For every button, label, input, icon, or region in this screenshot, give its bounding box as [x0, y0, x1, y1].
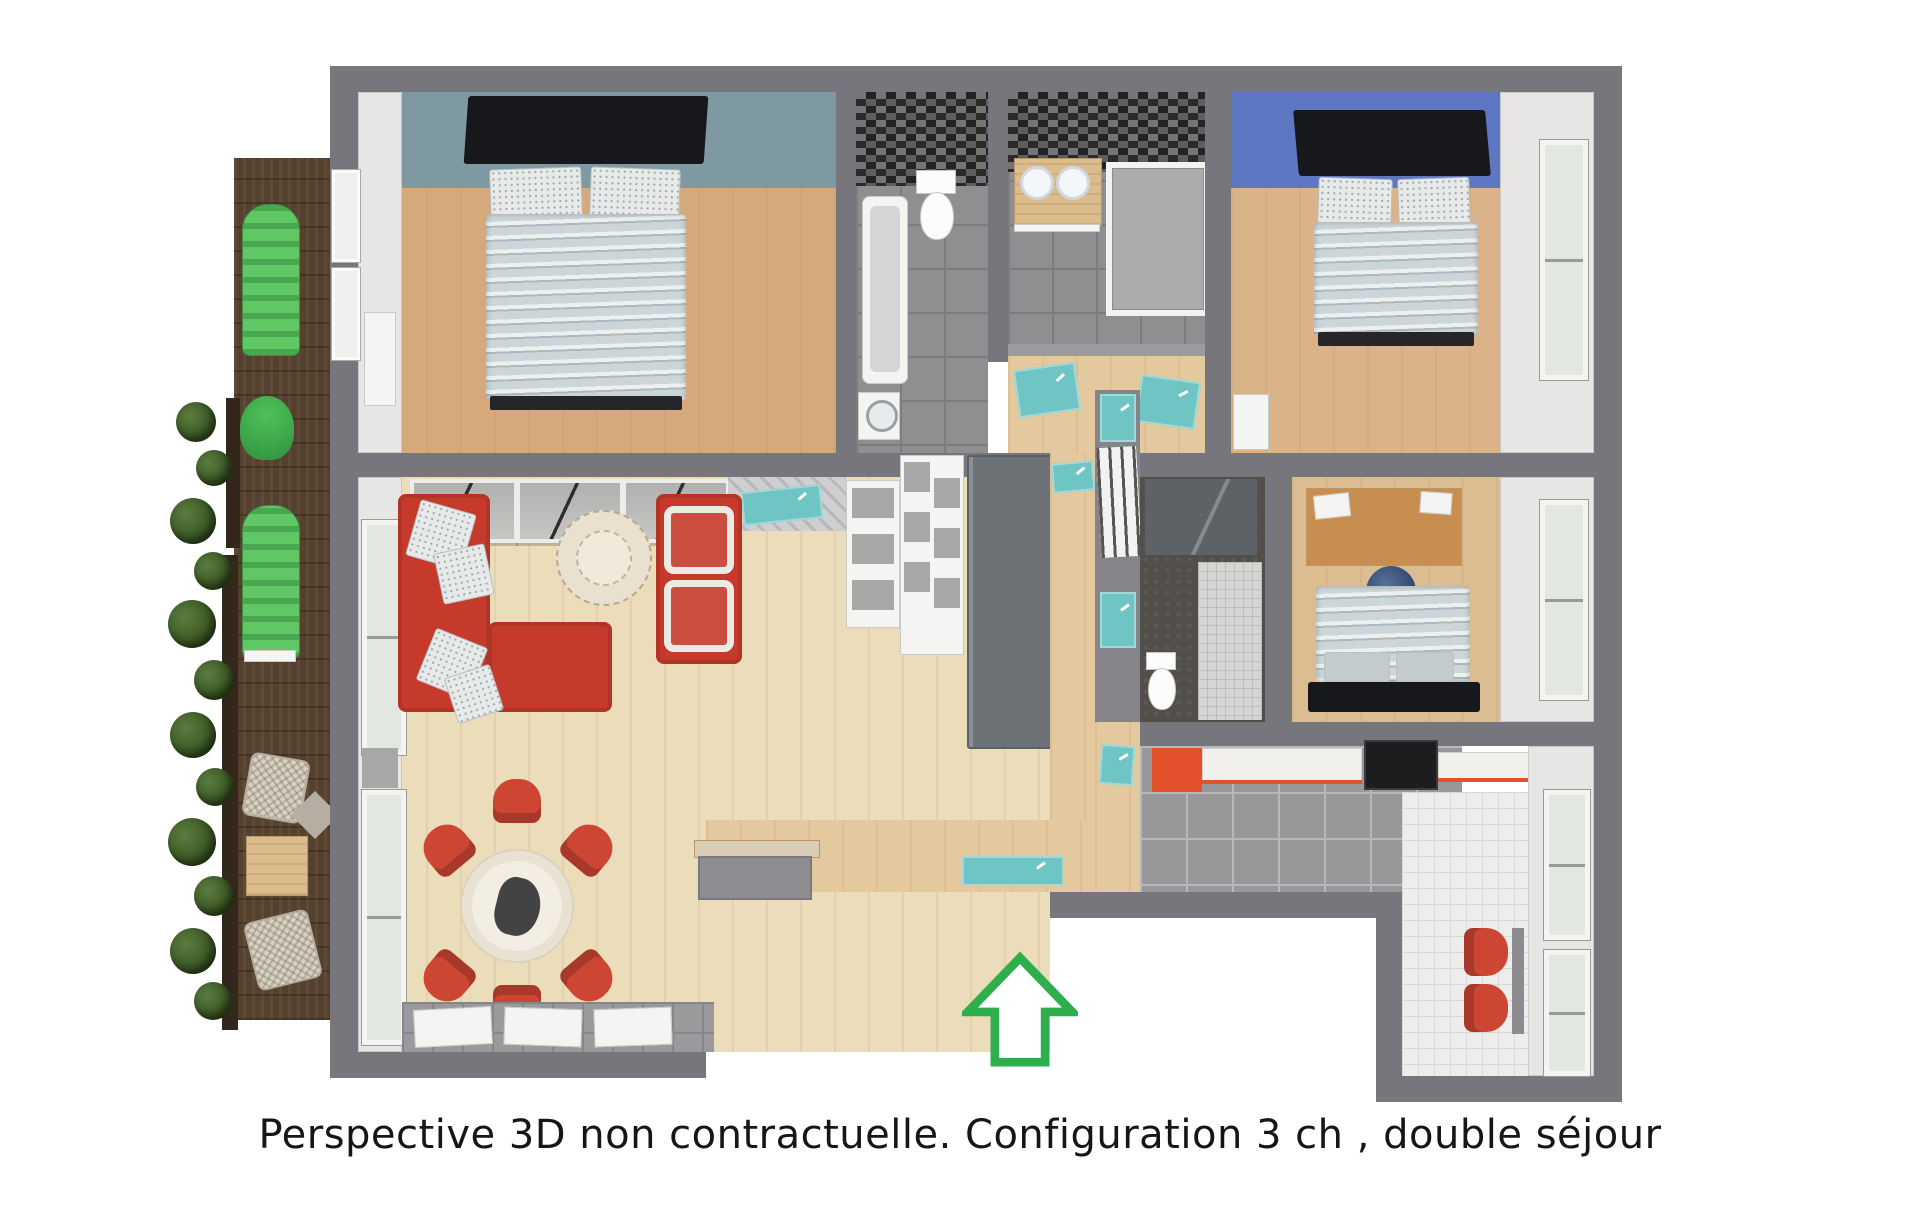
teal-doormat [1013, 362, 1081, 418]
desk-paper [1419, 491, 1452, 515]
balcony-plant-arch [240, 396, 294, 460]
wall-pier [362, 748, 398, 788]
hall-doormat [1051, 460, 1095, 494]
plant-icon [168, 818, 216, 866]
sink-icon [1020, 166, 1054, 200]
plant-icon [194, 552, 232, 590]
washing-machine-drum [866, 400, 898, 432]
bed-footboard [490, 396, 682, 410]
kitchen-doormat [1099, 744, 1136, 786]
toilet-icon [1148, 668, 1176, 710]
plant-icon [168, 600, 216, 648]
plant-icon [194, 660, 234, 700]
kitchen-cabinet-orange [1152, 748, 1202, 792]
bathtub-basin [870, 206, 900, 372]
kitchen-counter-accent [1202, 780, 1362, 784]
shelf-box [934, 528, 960, 558]
wall-nook-bottom [1376, 1076, 1622, 1102]
plant-icon [170, 498, 216, 544]
bed-headboard [464, 96, 709, 164]
teal-door [1100, 592, 1136, 648]
plant-icon [196, 450, 232, 486]
cooktop [1364, 740, 1438, 790]
shower-tray [1198, 562, 1262, 720]
balcony-table [246, 836, 308, 896]
wardrobe-unit [967, 455, 1055, 749]
wall-bedroom2-left [1205, 92, 1231, 453]
teal-door [1100, 394, 1136, 442]
plant-icon [176, 402, 216, 442]
sofa-cushion [664, 580, 734, 652]
plant-icon [194, 982, 232, 1020]
lounge-chair [242, 204, 300, 356]
bed-pillow [1317, 177, 1393, 228]
window-icon [1544, 950, 1590, 1076]
floor-mat [503, 1007, 582, 1048]
bed-pillow [1324, 652, 1390, 682]
slatted-door [1095, 445, 1143, 559]
window-icon [332, 170, 360, 262]
bed-pillow [1397, 177, 1471, 227]
wall-bathroom1-left [836, 92, 856, 453]
lounge-chair [242, 505, 300, 659]
wall-nook-left [1376, 918, 1402, 1102]
double-bed [1314, 222, 1478, 336]
shelf-box [934, 578, 960, 608]
caption-text: Perspective 3D non contractuelle. Config… [0, 1112, 1920, 1158]
window-icon [332, 268, 360, 360]
sofa-cushion [664, 506, 734, 574]
bed-pillow [1396, 652, 1454, 682]
floor-mat [413, 1006, 493, 1048]
corner-sofa-chaise [488, 622, 612, 712]
bed-headboard [1293, 110, 1491, 176]
teal-doormat [1135, 374, 1201, 430]
floorplan-canvas: Perspective 3D non contractuelle. Config… [0, 0, 1920, 1224]
bed-footboard [1318, 332, 1474, 346]
wall-bedroom3-left [1265, 477, 1292, 722]
window-icon [1544, 790, 1590, 940]
entry-doormat [962, 856, 1064, 886]
plant-icon [194, 876, 234, 916]
nook-chair-red [1464, 984, 1508, 1032]
wall-between-bathrooms [988, 92, 1008, 362]
plant-icon [170, 928, 216, 974]
wall-right [1594, 66, 1622, 1102]
entrance-arrow-icon [962, 950, 1078, 1070]
storage-column-box [852, 488, 894, 518]
toilet-icon [920, 192, 954, 240]
double-bed [486, 214, 686, 400]
nook-chair-red [1464, 928, 1508, 976]
coffee-table [576, 530, 632, 586]
lounger-footrest [244, 650, 296, 662]
storage-column-box [852, 534, 894, 564]
shelf-box [904, 462, 930, 492]
vanity-shelf [1014, 224, 1100, 232]
storage-column-box [852, 580, 894, 610]
wall-top [330, 66, 1622, 92]
sofa-pillow [433, 543, 495, 605]
shelf-box [904, 562, 930, 592]
wall-bottom-left [330, 1050, 706, 1078]
shelf-box [934, 478, 960, 508]
toilet-icon [916, 170, 956, 194]
window-icon [1540, 140, 1588, 380]
entry-bench [698, 856, 812, 900]
bed-headboard [1308, 682, 1480, 712]
bedroom-1-door [364, 312, 396, 406]
window-icon [1540, 500, 1588, 700]
balcony-door-icon [362, 790, 406, 1045]
corridor-wall [1008, 344, 1205, 356]
desk-paper [1313, 492, 1351, 520]
dining-chair [493, 779, 541, 823]
plant-icon [170, 712, 216, 758]
floor-mat [593, 1007, 672, 1048]
sink-icon [1056, 166, 1090, 200]
shelf-box [904, 512, 930, 542]
bedroom-2-door [1233, 394, 1269, 450]
nook-table [1512, 928, 1524, 1034]
kitchen-counter [1202, 748, 1362, 782]
shower-enclosure [1106, 162, 1210, 316]
wall-corridor-bedroom3 [1140, 453, 1594, 477]
shower-room-closet [1145, 479, 1257, 555]
plant-icon [196, 768, 234, 806]
